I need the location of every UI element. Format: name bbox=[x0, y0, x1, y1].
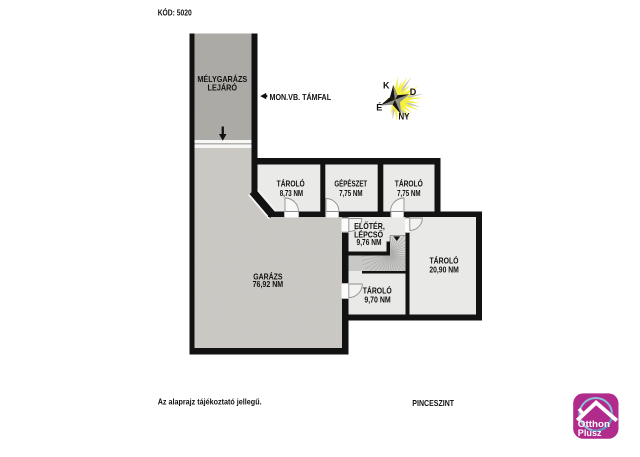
svg-text:MON.VB. TÁMFAL: MON.VB. TÁMFAL bbox=[270, 92, 332, 102]
svg-text:PINCESZINT: PINCESZINT bbox=[412, 398, 454, 408]
svg-text:LEJÁRÓ: LEJÁRÓ bbox=[208, 81, 238, 92]
svg-text:TÁROLÓ: TÁROLÓ bbox=[395, 178, 424, 189]
svg-text:20,90 NM: 20,90 NM bbox=[429, 265, 459, 275]
svg-text:KÓD: 5020: KÓD: 5020 bbox=[158, 6, 192, 17]
svg-text:NY: NY bbox=[399, 112, 410, 122]
svg-text:K: K bbox=[383, 81, 390, 91]
svg-text:TÁROLÓ: TÁROLÓ bbox=[277, 178, 306, 189]
svg-text:D: D bbox=[410, 87, 417, 97]
svg-text:8,73 NM: 8,73 NM bbox=[280, 188, 303, 198]
svg-text:7,75 NM: 7,75 NM bbox=[339, 188, 362, 198]
svg-text:Plusz: Plusz bbox=[578, 428, 602, 438]
svg-text:9,70 NM: 9,70 NM bbox=[364, 295, 390, 305]
svg-text:7,75 NM: 7,75 NM bbox=[397, 188, 420, 198]
svg-text:76,92 NM: 76,92 NM bbox=[253, 279, 284, 289]
svg-text:9,76 NM: 9,76 NM bbox=[357, 237, 382, 247]
svg-text:É: É bbox=[376, 102, 382, 112]
svg-text:Az alaprajz tájékoztató jelleg: Az alaprajz tájékoztató jellegű. bbox=[158, 398, 262, 407]
